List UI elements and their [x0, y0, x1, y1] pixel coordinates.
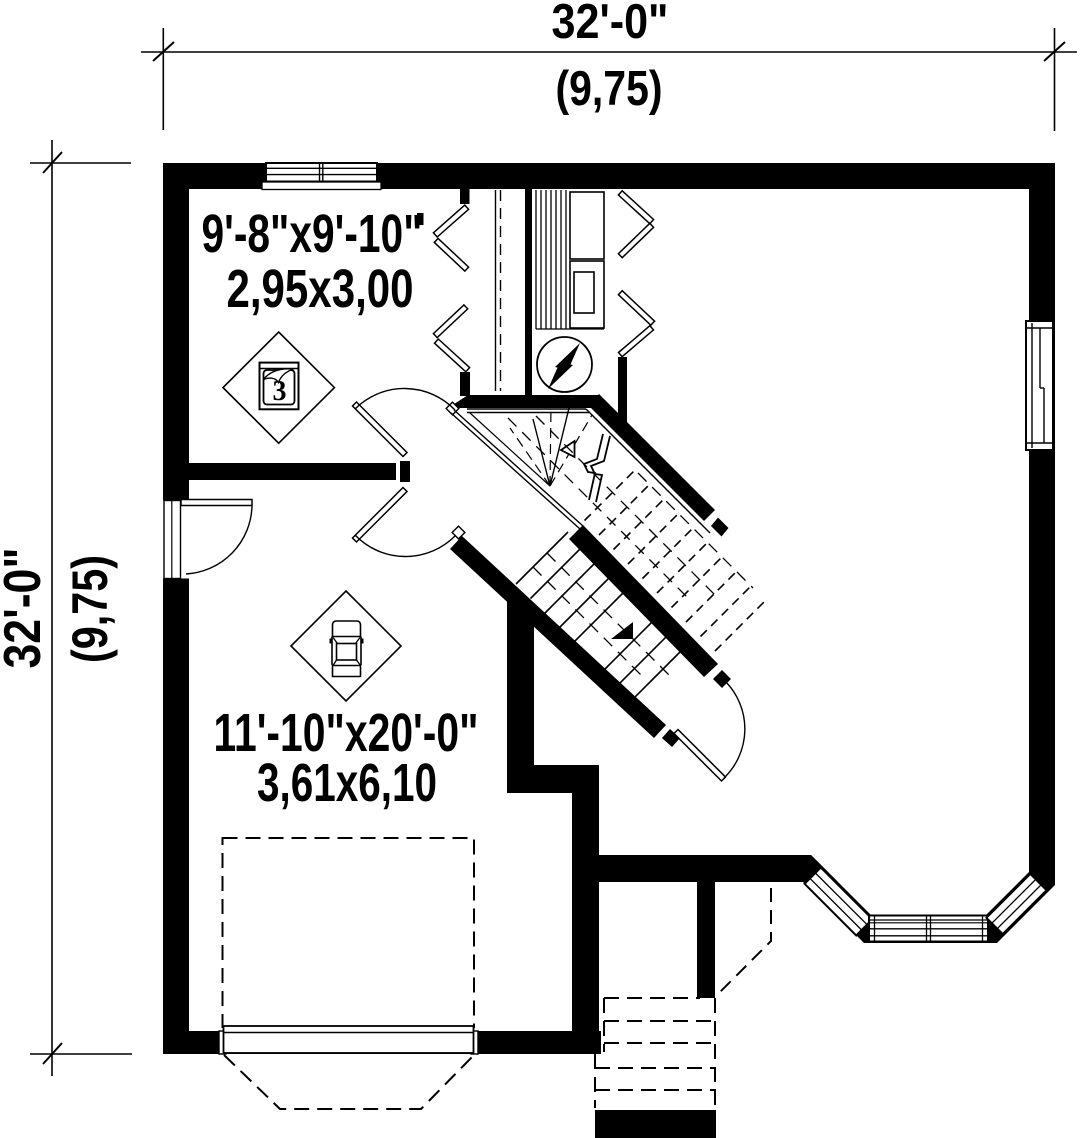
svg-text:(9,75): (9,75)	[62, 555, 118, 663]
svg-text:(9,75): (9,75)	[556, 62, 663, 116]
svg-text:32'-0": 32'-0"	[552, 0, 669, 49]
svg-text:2,95x3,00: 2,95x3,00	[227, 259, 414, 319]
svg-text:32'-0": 32'-0"	[0, 548, 52, 669]
svg-text:9'-8"x9'-10": 9'-8"x9'-10"	[202, 204, 423, 264]
svg-text:3,61x6,10: 3,61x6,10	[257, 753, 437, 813]
svg-text:3: 3	[273, 376, 287, 407]
